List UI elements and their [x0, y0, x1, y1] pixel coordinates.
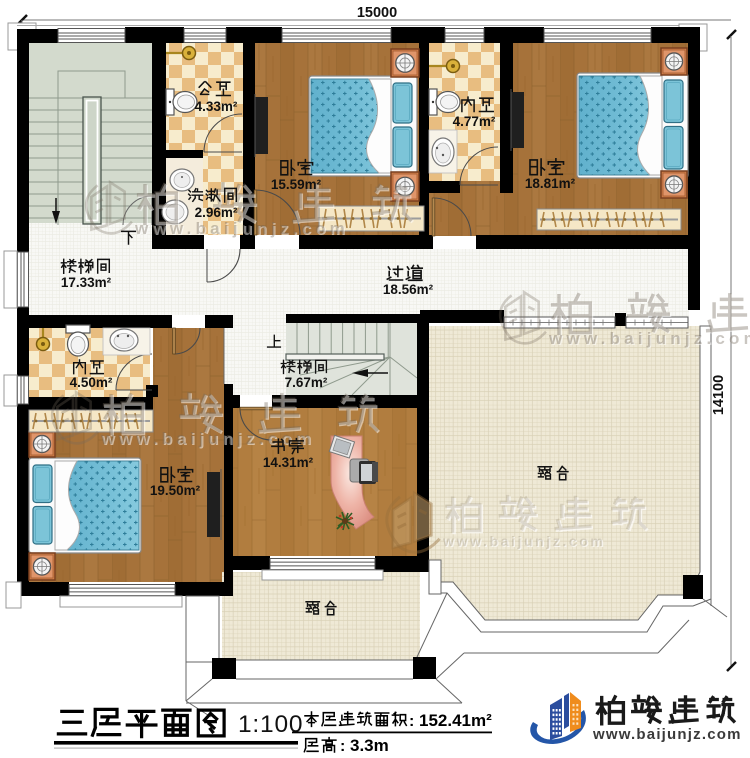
svg-text:14.31m²: 14.31m² [263, 455, 314, 470]
svg-text::: : [340, 738, 345, 755]
svg-text:1:100: 1:100 [238, 711, 303, 738]
svg-text:18.56m²: 18.56m² [383, 282, 434, 297]
svg-text:www.baijunjz.com: www.baijunjz.com [442, 533, 605, 549]
svg-text:17.33m²: 17.33m² [61, 275, 112, 290]
svg-text:4.77m²: 4.77m² [453, 114, 496, 129]
svg-text:14100: 14100 [711, 375, 727, 415]
svg-text:2.96m²: 2.96m² [195, 205, 238, 220]
svg-text:www.baijunjz.com: www.baijunjz.com [592, 726, 742, 743]
svg-text:4.33m²: 4.33m² [195, 99, 238, 114]
svg-text:19.50m²: 19.50m² [150, 483, 201, 498]
svg-text:15.59m²: 15.59m² [271, 177, 322, 192]
svg-text:18.81m²: 18.81m² [525, 176, 576, 191]
svg-text::: : [409, 713, 414, 730]
svg-text:15000: 15000 [357, 5, 397, 21]
svg-text:4.50m²: 4.50m² [70, 375, 113, 390]
svg-text:152.41m²: 152.41m² [419, 711, 492, 730]
svg-text:7.67m²: 7.67m² [285, 375, 328, 390]
svg-text:3.3m: 3.3m [350, 736, 389, 755]
svg-text:www.baijunjz.com: www.baijunjz.com [134, 219, 349, 238]
svg-text:www.baijunjz.com: www.baijunjz.com [548, 329, 750, 348]
